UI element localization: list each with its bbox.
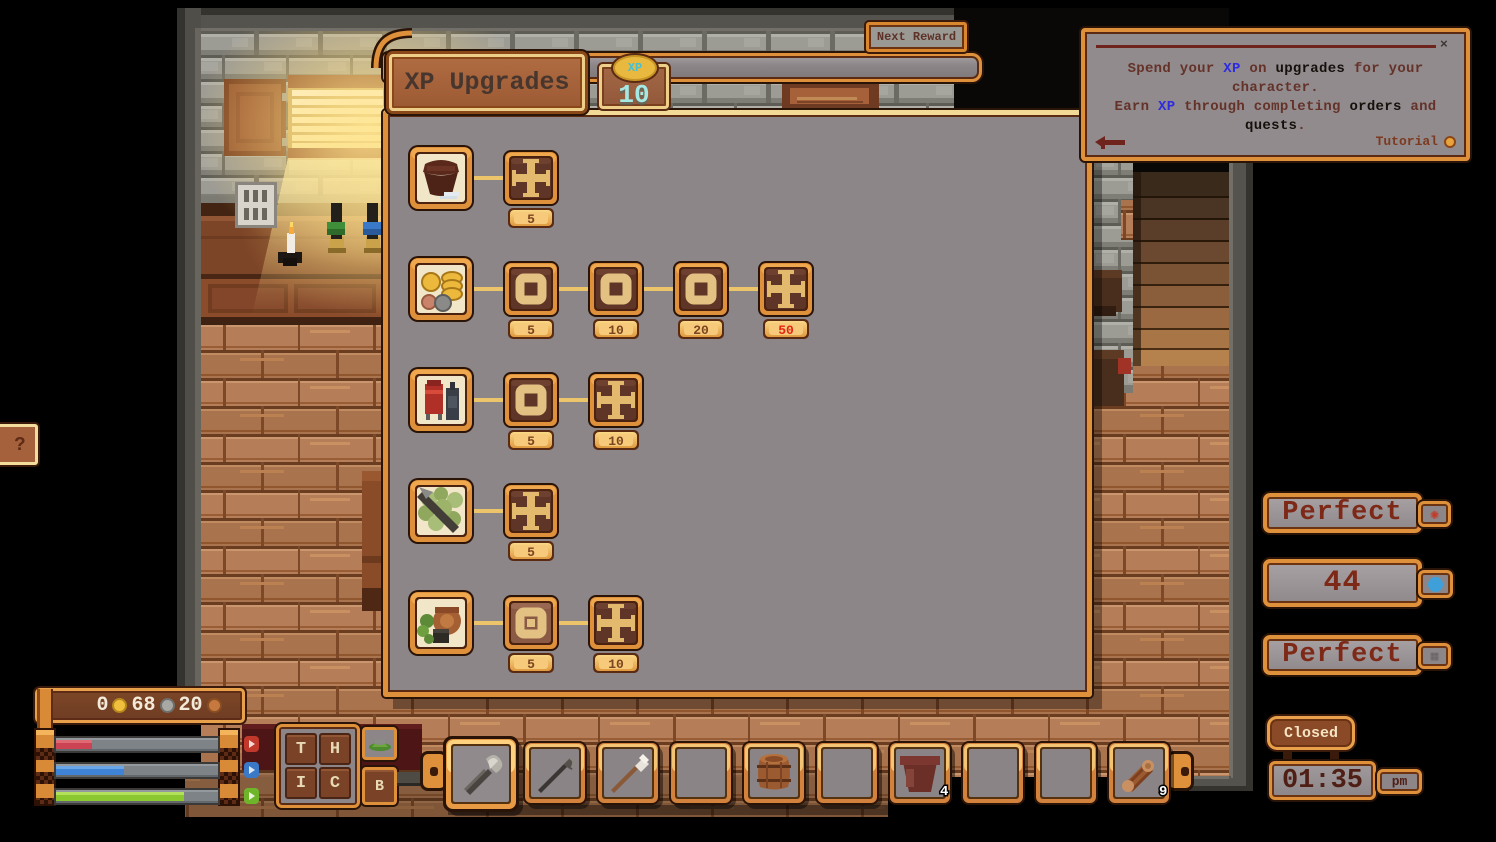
svg-text:10: 10: [608, 323, 624, 338]
svg-text:10: 10: [608, 657, 624, 672]
svg-text:5: 5: [527, 434, 535, 449]
svg-text:50: 50: [778, 323, 794, 338]
svg-text:9: 9: [1159, 784, 1167, 800]
svg-text:4: 4: [940, 784, 948, 800]
svg-text:20: 20: [693, 323, 709, 338]
svg-text:5: 5: [527, 545, 535, 560]
svg-text:10: 10: [608, 434, 624, 449]
svg-text:5: 5: [527, 212, 535, 227]
svg-text:5: 5: [527, 323, 535, 338]
svg-text:5: 5: [527, 657, 535, 672]
